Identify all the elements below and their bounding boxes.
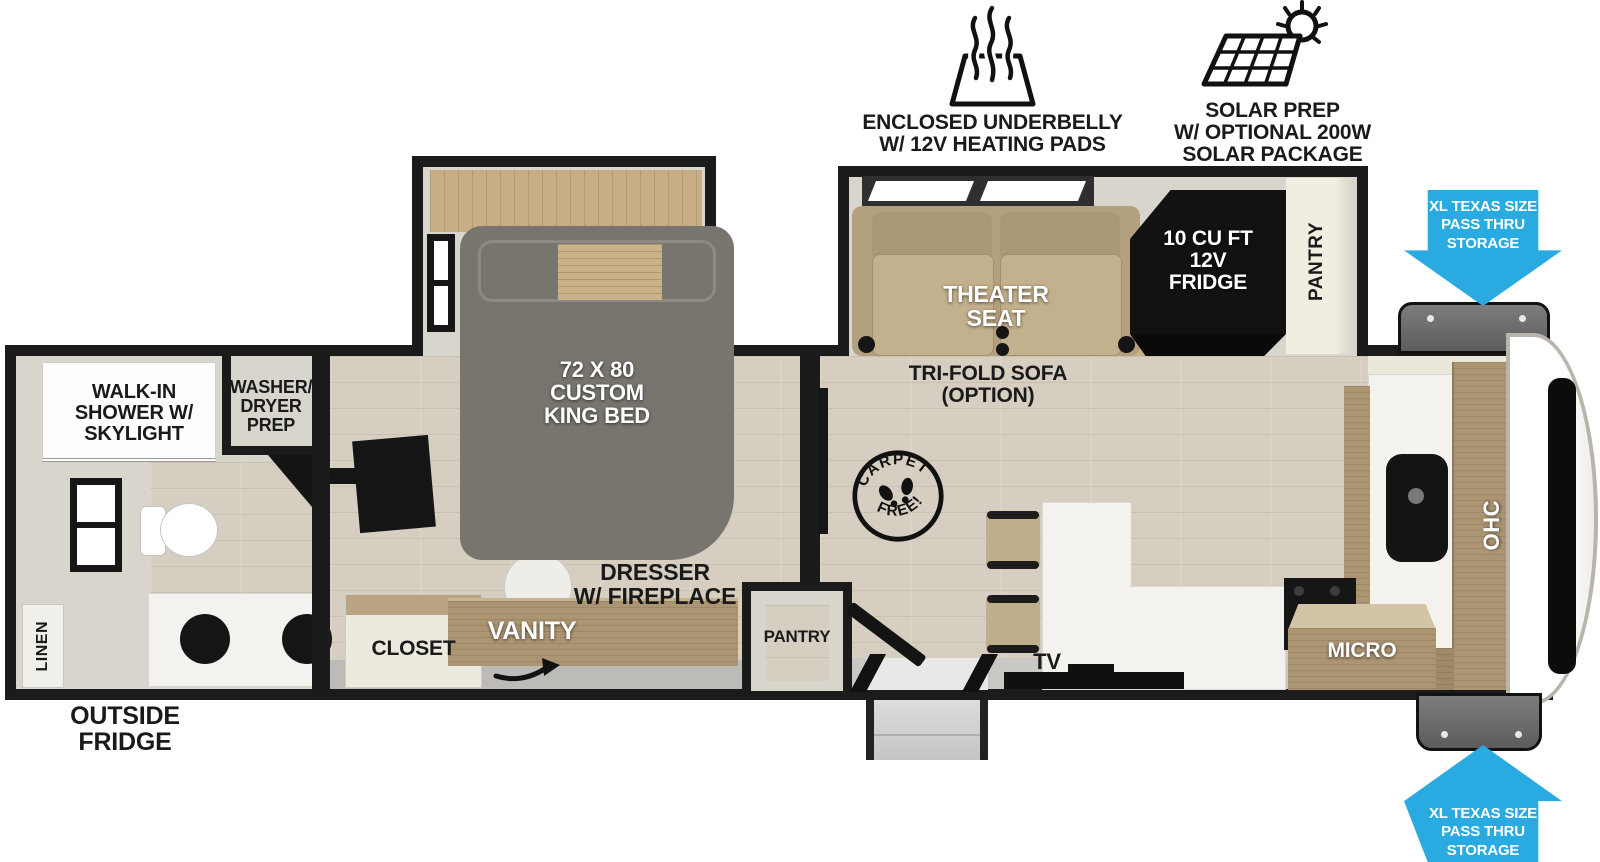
bar-stool-1 — [986, 514, 1040, 566]
cupholder-2 — [996, 343, 1009, 356]
heating-pads-icon — [935, 4, 1050, 110]
dresser-label: DRESSER W/ FIREPLACE — [530, 560, 780, 608]
bed-label: 72 X 80 CUSTOM KING BED — [500, 358, 694, 427]
living-pantry-label: PANTRY — [1286, 186, 1348, 336]
shower-label: WALK-IN SHOWER W/ SKYLIGHT — [52, 382, 216, 445]
vanity-label: VANITY — [462, 618, 602, 644]
micro-label: MICRO — [1288, 640, 1436, 662]
living-slideout-window — [862, 176, 1094, 206]
theater-seat-back-left — [872, 212, 992, 258]
living-tv — [1004, 672, 1184, 689]
theater-seat-label: THEATER SEAT — [906, 282, 1086, 330]
door-swing-arrow-icon — [492, 654, 562, 682]
pass-thru-label-bottom: XL TEXAS SIZE PASS THRU STORAGE — [1404, 805, 1562, 860]
bath-sink-left — [180, 614, 230, 664]
fridge-label: 10 CU FT 12V FRIDGE — [1130, 228, 1286, 294]
solar-panel-icon — [1198, 0, 1333, 100]
storage-door-bottom — [1416, 693, 1542, 751]
seat-foot-left — [858, 336, 875, 353]
bar-stool-2 — [986, 598, 1040, 650]
bed-headboard-shelf — [430, 170, 702, 232]
front-cap-window — [1548, 378, 1576, 674]
seat-foot-right — [1118, 336, 1135, 353]
bathroom-window — [70, 478, 122, 572]
ohc-label: OHC — [1452, 430, 1532, 620]
toilet-bowl — [160, 503, 218, 557]
bedroom-living-wall — [800, 345, 820, 588]
carpet-free-stamp: CARPET FREE! — [841, 439, 955, 553]
bedroom-window-left — [427, 234, 455, 332]
pass-thru-arrow-up: XL TEXAS SIZE PASS THRU STORAGE — [1404, 745, 1562, 862]
entertainment-cabinet — [818, 388, 828, 534]
theater-seat-back-right — [1000, 212, 1120, 258]
floorplan-canvas: ENCLOSED UNDERBELLY W/ 12V HEATING PADS … — [0, 0, 1600, 862]
bath-bedroom-wall — [312, 345, 330, 700]
kitchen-sink — [1386, 454, 1448, 562]
outside-fridge-label: OUTSIDE FRIDGE — [25, 703, 225, 756]
bed-blanket — [558, 244, 662, 300]
underbelly-label: ENCLOSED UNDERBELLY W/ 12V HEATING PADS — [850, 112, 1135, 156]
sofa-option-label: TRI-FOLD SOFA (OPTION) — [868, 363, 1108, 407]
bedroom-pantry-label: PANTRY — [742, 628, 852, 646]
entry-steps — [866, 700, 988, 760]
linen-label: LINEN — [22, 604, 64, 688]
pass-thru-label-top: XL TEXAS SIZE PASS THRU STORAGE — [1404, 198, 1562, 253]
washer-dryer-label: WASHER/ DRYER PREP — [228, 378, 314, 435]
tv-label: TV — [1012, 650, 1082, 673]
solar-label: SOLAR PREP W/ OPTIONAL 200W SOLAR PACKAG… — [1140, 100, 1405, 166]
fridge-shadow — [1130, 334, 1286, 356]
pass-thru-arrow-down: XL TEXAS SIZE PASS THRU STORAGE — [1404, 190, 1562, 306]
bedroom-tv — [352, 435, 436, 533]
